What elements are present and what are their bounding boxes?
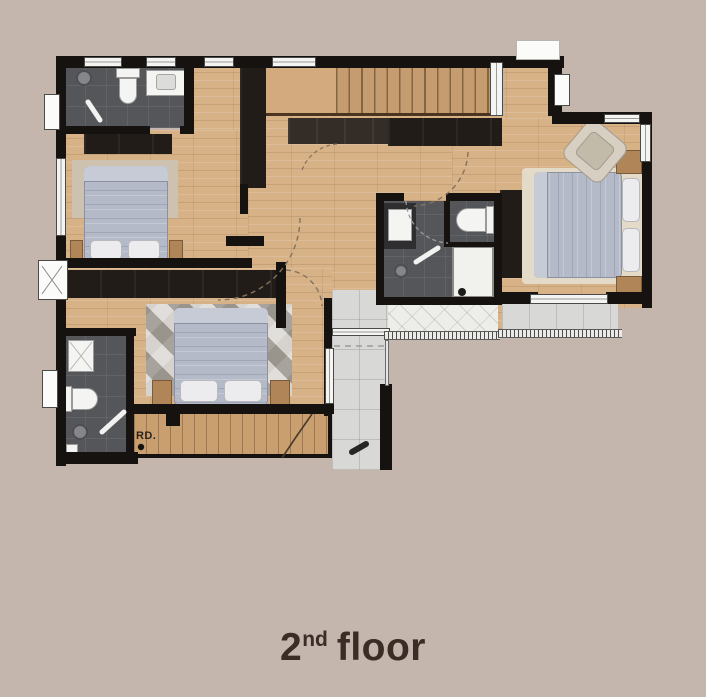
bedroom3-nightstand xyxy=(152,380,172,406)
window-shaft xyxy=(42,370,58,408)
window xyxy=(604,114,640,123)
master-bath-floor-drain xyxy=(394,264,408,278)
wall xyxy=(184,56,194,134)
bedroom3-pillow xyxy=(180,380,218,402)
window-shaft xyxy=(44,94,60,130)
wall xyxy=(276,262,286,328)
master-pillow xyxy=(622,178,640,222)
master-balcony-floor xyxy=(502,303,618,331)
master-bath-toilet-bowl xyxy=(456,208,486,232)
glass-door xyxy=(325,348,334,404)
window xyxy=(56,158,66,236)
balcony-railing xyxy=(498,329,622,338)
drying-terrace-floor xyxy=(388,303,498,333)
wall xyxy=(380,384,392,470)
bedroom3-bed-fold xyxy=(174,308,268,324)
bedroom2-pillow xyxy=(128,240,160,260)
bathroom2-shower-head xyxy=(76,70,92,86)
window xyxy=(146,57,176,67)
bedroom3-nightstand xyxy=(270,380,290,406)
wall xyxy=(126,332,134,460)
bathroom3-vanity xyxy=(68,340,94,372)
bathroom2-toilet-tank xyxy=(116,68,140,78)
wall xyxy=(60,126,150,134)
wall xyxy=(450,242,496,247)
wall xyxy=(444,201,450,247)
floor-title-word: floor xyxy=(337,626,426,669)
window xyxy=(272,57,316,67)
window xyxy=(204,57,234,67)
wall xyxy=(128,404,334,414)
hall-tall-wardrobe xyxy=(240,66,266,188)
wall xyxy=(376,193,384,305)
bedroom2-bed-fold xyxy=(84,166,168,182)
wall xyxy=(60,328,136,336)
sliding-door xyxy=(530,294,608,304)
wall xyxy=(56,452,138,464)
wall xyxy=(240,184,248,214)
roof-deck xyxy=(134,414,332,458)
master-pillow xyxy=(622,228,640,272)
wall xyxy=(226,236,264,246)
master-bath-basin xyxy=(388,209,412,241)
floor-plan-canvas: RD. 2ndfloor xyxy=(0,0,706,697)
terrace-railing xyxy=(384,331,500,340)
bedroom2-dresser xyxy=(84,134,172,154)
roof-drain-label: RD. xyxy=(136,430,156,442)
master-wardrobe xyxy=(500,190,522,278)
stair-railing xyxy=(490,62,503,116)
staircase-treads xyxy=(336,68,500,116)
bathroom3-toilet-bowl xyxy=(72,388,98,410)
bedroom2-pillow xyxy=(90,240,122,260)
wall xyxy=(166,412,180,426)
chimney xyxy=(516,40,560,60)
wall xyxy=(376,297,502,305)
hall-cabinet-left xyxy=(288,118,388,144)
floor-title-number: 2 xyxy=(280,626,302,669)
sliding-door-track xyxy=(332,328,390,336)
floor-title-ordinal: nd xyxy=(302,628,328,651)
wall xyxy=(56,258,252,268)
master-bath-toilet-tank xyxy=(486,206,494,234)
bathroom3-floor-drain xyxy=(72,424,88,440)
wall xyxy=(494,193,502,305)
window xyxy=(640,124,651,162)
walkway-railing xyxy=(385,340,389,386)
bedroom3-pillow xyxy=(224,380,262,402)
window-shaft xyxy=(554,74,570,106)
bathroom2-toilet-bowl xyxy=(119,78,137,104)
wall xyxy=(376,193,404,201)
vent-shaft xyxy=(38,260,68,300)
floor-title: 2ndfloor xyxy=(0,626,706,670)
hall-cabinet-right xyxy=(388,118,502,146)
window xyxy=(84,57,122,67)
wall xyxy=(606,292,652,304)
master-bath-stall-drain xyxy=(458,288,466,296)
wall xyxy=(180,126,194,134)
stair-landing xyxy=(266,68,336,116)
bathroom2-basin xyxy=(156,74,176,90)
bedroom3-closet xyxy=(66,270,276,298)
master-bed-fold xyxy=(534,172,548,278)
